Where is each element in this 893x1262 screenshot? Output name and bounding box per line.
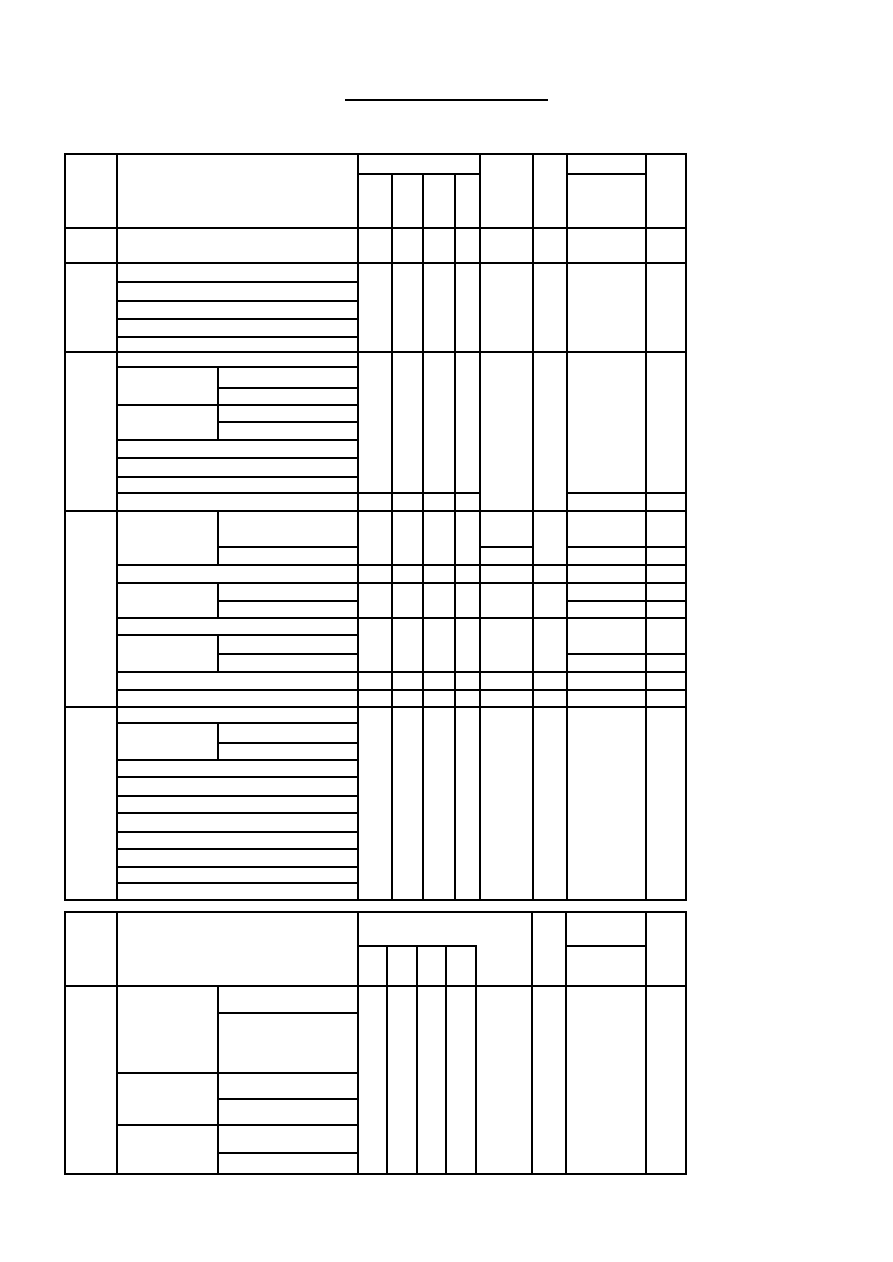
grid-line-vertical bbox=[685, 911, 687, 1175]
grid-line-horizontal bbox=[217, 1098, 359, 1100]
grid-line-vertical bbox=[217, 985, 219, 1175]
grid-line-vertical bbox=[386, 945, 388, 1175]
grid-line-vertical bbox=[645, 911, 647, 1175]
grid-line-horizontal bbox=[116, 1072, 359, 1074]
grid-line-horizontal bbox=[64, 911, 687, 913]
grid-line-vertical bbox=[416, 945, 418, 1175]
grid-line-horizontal bbox=[217, 1012, 359, 1014]
grid-line-horizontal bbox=[217, 1152, 359, 1154]
grid-line-vertical bbox=[116, 911, 118, 1175]
grid-line-vertical bbox=[565, 911, 567, 1175]
grid-line-vertical bbox=[445, 945, 447, 1175]
grid-line-vertical bbox=[475, 945, 477, 1175]
grid-line-horizontal bbox=[565, 945, 647, 947]
grid-line-vertical bbox=[531, 911, 533, 1175]
grid-line-horizontal bbox=[116, 1124, 359, 1126]
grid-line-horizontal bbox=[64, 1173, 687, 1175]
lower-table bbox=[0, 0, 893, 1262]
grid-line-vertical bbox=[357, 911, 359, 1175]
grid-line-horizontal bbox=[64, 985, 687, 987]
document-page bbox=[0, 0, 893, 1262]
grid-line-vertical bbox=[64, 911, 66, 1175]
